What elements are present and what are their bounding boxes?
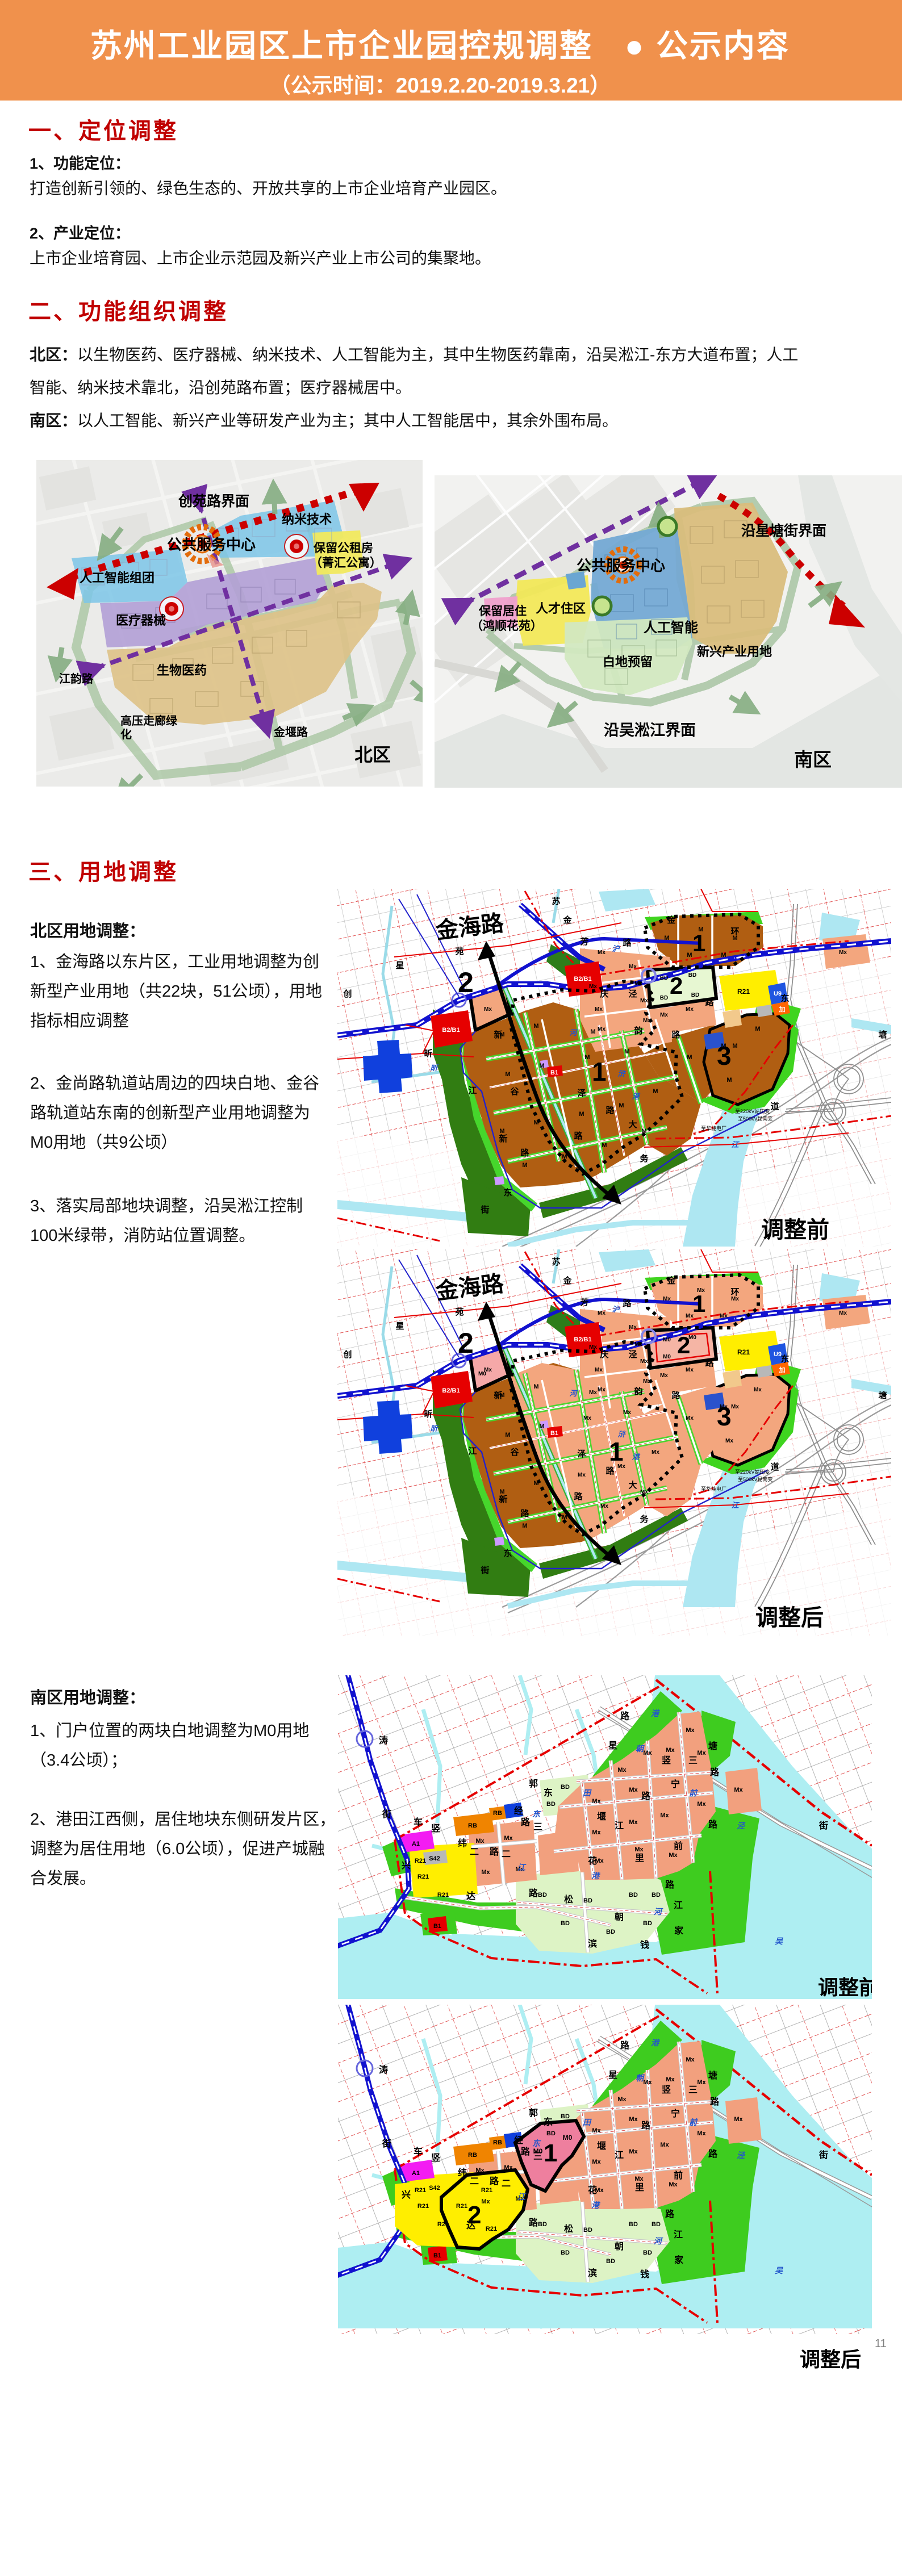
svg-text:田: 田 <box>583 1788 592 1797</box>
svg-text:M: M <box>653 1088 658 1095</box>
svg-text:环: 环 <box>730 1287 739 1297</box>
svg-text:花: 花 <box>588 1855 597 1866</box>
svg-text:芳: 芳 <box>580 1297 588 1307</box>
svg-text:Mx: Mx <box>592 1829 601 1836</box>
svg-text:新: 新 <box>499 1134 507 1144</box>
svg-text:达: 达 <box>466 2220 475 2231</box>
svg-text:新: 新 <box>499 1494 507 1504</box>
svg-text:Mx: Mx <box>720 1404 728 1410</box>
svg-text:R21: R21 <box>481 2187 492 2194</box>
svg-text:R21: R21 <box>486 2226 497 2232</box>
svg-text:路: 路 <box>665 2209 675 2219</box>
svg-text:二: 二 <box>502 2179 511 2189</box>
svg-text:昕: 昕 <box>424 1048 432 1059</box>
svg-text:家: 家 <box>674 2255 684 2265</box>
svg-text:Mx: Mx <box>629 1324 637 1331</box>
svg-text:Mx: Mx <box>697 1750 706 1757</box>
svg-text:三: 三 <box>533 2152 542 2161</box>
svg-text:Mx: Mx <box>839 1310 847 1316</box>
svg-text:兴: 兴 <box>402 1860 411 1871</box>
svg-text:环: 环 <box>730 927 739 936</box>
svg-text:江: 江 <box>674 2230 683 2240</box>
svg-text:Mx: Mx <box>589 984 597 990</box>
svg-text:Mx: Mx <box>589 1390 597 1396</box>
svg-text:Mx: Mx <box>643 1378 651 1385</box>
svg-text:Mx: Mx <box>660 1373 668 1379</box>
svg-text:B2/B1: B2/B1 <box>574 976 591 982</box>
svg-text:花: 花 <box>588 2185 597 2196</box>
svg-text:M: M <box>539 1423 544 1430</box>
svg-text:竖: 竖 <box>662 1755 671 1766</box>
svg-text:Mx: Mx <box>643 1018 651 1024</box>
svg-text:港: 港 <box>632 1092 640 1101</box>
svg-text:A1: A1 <box>412 2170 420 2177</box>
svg-text:东: 东 <box>544 1787 553 1798</box>
svg-text:路: 路 <box>490 1846 499 1857</box>
svg-text:南区: 南区 <box>794 749 832 770</box>
svg-text:浒: 浒 <box>617 1430 626 1438</box>
svg-text:Mx: Mx <box>634 2176 644 2182</box>
svg-text:纬: 纬 <box>458 2167 467 2178</box>
svg-text:堰: 堰 <box>597 2141 606 2151</box>
svg-text:沪: 沪 <box>612 944 620 953</box>
svg-text:人工智能组团: 人工智能组团 <box>80 571 154 585</box>
svg-text:Mx: Mx <box>686 1727 695 1734</box>
svg-text:Mx: Mx <box>686 1415 694 1421</box>
svg-text:1: 1 <box>592 1057 607 1086</box>
svg-text:BD: BD <box>561 2113 570 2120</box>
svg-text:Mx: Mx <box>634 1846 644 1853</box>
svg-text:苑: 苑 <box>455 1307 463 1317</box>
svg-text:路: 路 <box>705 997 714 1007</box>
svg-text:BD: BD <box>561 1920 570 1927</box>
svg-text:Mx: Mx <box>617 2096 627 2103</box>
svg-text:Mx: Mx <box>475 1838 485 1845</box>
svg-text:泾: 泾 <box>628 989 637 999</box>
svg-text:Mx: Mx <box>734 1787 743 1793</box>
svg-text:金: 金 <box>666 1276 676 1286</box>
svg-text:BD: BD <box>546 2130 556 2137</box>
svg-text:M: M <box>726 1077 732 1084</box>
svg-text:Mx: Mx <box>640 1358 648 1365</box>
svg-text:Mx: Mx <box>598 1387 605 1393</box>
svg-text:M0: M0 <box>478 1371 486 1377</box>
svg-text:保留居住: 保留居住 <box>478 604 527 618</box>
svg-text:M: M <box>687 1054 692 1061</box>
svg-text:Mx: Mx <box>663 1296 671 1302</box>
svg-text:Mx: Mx <box>839 950 847 956</box>
svg-text:吴: 吴 <box>775 2266 783 2275</box>
svg-text:Mx: Mx <box>595 1367 603 1373</box>
svg-text:BD: BD <box>691 992 699 998</box>
svg-text:堰: 堰 <box>597 1812 606 1822</box>
svg-text:韵: 韵 <box>634 1026 642 1036</box>
svg-text:R21: R21 <box>415 2187 426 2194</box>
svg-text:M: M <box>721 1043 726 1049</box>
svg-text:路: 路 <box>620 2040 630 2051</box>
svg-text:Mx: Mx <box>669 1852 678 1859</box>
svg-text:纳米技术: 纳米技术 <box>282 512 332 526</box>
svg-text:M: M <box>641 1128 646 1135</box>
svg-text:东: 东 <box>503 1548 512 1558</box>
svg-text:Mx: Mx <box>595 1006 603 1013</box>
svg-text:M: M <box>721 952 726 959</box>
svg-text:经: 经 <box>514 2135 523 2146</box>
svg-text:松: 松 <box>564 2223 573 2234</box>
svg-text:钱: 钱 <box>640 2269 649 2280</box>
svg-text:江: 江 <box>615 2150 624 2160</box>
svg-text:路: 路 <box>665 1879 675 1890</box>
svg-text:Mx: Mx <box>481 2198 490 2205</box>
svg-text:金: 金 <box>562 915 572 925</box>
svg-text:至华能电厂: 至华能电厂 <box>701 1125 726 1131</box>
svg-text:创: 创 <box>343 989 352 999</box>
svg-text:RB: RB <box>493 2139 502 2146</box>
svg-text:加: 加 <box>779 1005 786 1013</box>
svg-text:里: 里 <box>635 1853 644 1863</box>
svg-text:宁: 宁 <box>671 2108 680 2119</box>
svg-text:Mx: Mx <box>697 1801 706 1808</box>
svg-text:Mx: Mx <box>598 1026 605 1032</box>
svg-text:泽: 泽 <box>577 1449 586 1459</box>
svg-text:BD: BD <box>643 2249 652 2256</box>
svg-text:至华能电厂: 至华能电厂 <box>701 1486 726 1492</box>
svg-text:Mx: Mx <box>697 1287 705 1294</box>
svg-text:BD: BD <box>538 1892 547 1898</box>
svg-text:路: 路 <box>620 1711 630 1721</box>
svg-text:江韵路: 江韵路 <box>59 672 94 685</box>
svg-text:创苑路界面: 创苑路界面 <box>178 494 249 509</box>
svg-text:江: 江 <box>731 1501 740 1509</box>
svg-text:路: 路 <box>708 2148 718 2159</box>
svg-text:泽: 泽 <box>577 1089 586 1098</box>
svg-text:Mx: Mx <box>598 1310 605 1316</box>
svg-text:东: 东 <box>503 1187 512 1198</box>
svg-text:路: 路 <box>671 1030 680 1040</box>
svg-text:涛: 涛 <box>379 2064 388 2075</box>
svg-text:M: M <box>590 1028 595 1035</box>
svg-text:加: 加 <box>779 1366 786 1374</box>
svg-text:B2/B1: B2/B1 <box>574 1336 591 1343</box>
svg-text:新: 新 <box>494 1390 502 1400</box>
svg-text:郭: 郭 <box>529 1778 538 1789</box>
svg-text:S42: S42 <box>429 2185 440 2192</box>
svg-text:（菁汇公寓）: （菁汇公寓） <box>310 556 382 570</box>
svg-text:前: 前 <box>674 1841 683 1851</box>
svg-text:M0: M0 <box>663 1354 671 1360</box>
svg-text:星: 星 <box>608 2070 617 2080</box>
svg-text:沿星塘街界面: 沿星塘街界面 <box>741 522 826 539</box>
svg-text:苏: 苏 <box>552 896 560 906</box>
svg-text:BD: BD <box>629 2221 638 2228</box>
svg-text:三: 三 <box>688 1756 698 1766</box>
svg-text:化: 化 <box>120 727 132 741</box>
svg-text:Mx: Mx <box>578 1472 586 1478</box>
svg-text:B1: B1 <box>550 1430 558 1437</box>
svg-text:路: 路 <box>605 1466 615 1476</box>
svg-text:调整前: 调整前 <box>818 1976 872 1999</box>
svg-text:公共服务中心: 公共服务中心 <box>577 557 665 574</box>
svg-text:东: 东 <box>532 1809 541 1818</box>
svg-text:M0: M0 <box>563 2134 573 2142</box>
svg-text:1: 1 <box>609 1437 624 1466</box>
svg-text:朝: 朝 <box>636 2073 645 2082</box>
svg-text:江: 江 <box>674 1900 683 1910</box>
svg-text:Mx: Mx <box>598 950 605 956</box>
svg-text:调整前: 调整前 <box>761 1218 829 1243</box>
svg-text:庆: 庆 <box>600 1349 608 1360</box>
svg-text:Mx: Mx <box>504 2164 513 2171</box>
svg-text:至220kV姑田变: 至220kV姑田变 <box>735 1469 770 1475</box>
svg-text:金: 金 <box>562 1276 572 1286</box>
svg-text:街: 街 <box>480 1205 489 1215</box>
svg-text:Mx: Mx <box>754 1387 762 1393</box>
svg-text:医疗器械: 医疗器械 <box>116 613 166 628</box>
svg-text:新兴产业用地: 新兴产业用地 <box>697 645 772 659</box>
svg-text:B1: B1 <box>550 1069 558 1076</box>
svg-text:M: M <box>732 1043 737 1049</box>
svg-text:人才住区: 人才住区 <box>536 601 586 616</box>
svg-text:大: 大 <box>628 1119 637 1130</box>
svg-text:路: 路 <box>710 2096 720 2107</box>
svg-text:浒: 浒 <box>617 1069 626 1078</box>
svg-text:路: 路 <box>574 1491 583 1502</box>
svg-text:二: 二 <box>470 2177 479 2186</box>
svg-text:Mx: Mx <box>629 1787 638 1793</box>
svg-text:朝: 朝 <box>636 1744 645 1753</box>
svg-text:Mx: Mx <box>640 998 648 1004</box>
svg-text:B1: B1 <box>433 1923 441 1930</box>
svg-text:经: 经 <box>514 1805 523 1816</box>
svg-text:江: 江 <box>731 1140 740 1149</box>
svg-text:M: M <box>619 1102 624 1109</box>
svg-text:M: M <box>698 926 703 933</box>
svg-text:BD: BD <box>660 975 668 981</box>
svg-text:Mx: Mx <box>600 1503 608 1509</box>
svg-text:Mx: Mx <box>643 1750 652 1757</box>
svg-text:道: 道 <box>770 1462 779 1472</box>
svg-text:生物医药: 生物医药 <box>157 663 207 678</box>
svg-text:前: 前 <box>674 2170 683 2181</box>
svg-text:昕: 昕 <box>424 1409 432 1419</box>
svg-text:街: 街 <box>819 1820 828 1831</box>
svg-text:Mx: Mx <box>475 2167 485 2174</box>
svg-text:路: 路 <box>520 1148 529 1158</box>
svg-text:Mx: Mx <box>734 2116 743 2123</box>
svg-text:人工智能: 人工智能 <box>644 620 698 635</box>
svg-text:三: 三 <box>688 2085 698 2095</box>
svg-text:Mx: Mx <box>643 2079 652 2086</box>
svg-text:BD: BD <box>606 1929 615 1935</box>
svg-text:星: 星 <box>395 961 404 971</box>
svg-text:BD: BD <box>561 1784 570 1791</box>
svg-text:BD: BD <box>629 1892 638 1898</box>
svg-text:至500kV昆南变: 至500kV昆南变 <box>738 1115 773 1122</box>
svg-text:B2/B1: B2/B1 <box>442 1027 460 1034</box>
svg-text:1: 1 <box>544 2139 557 2167</box>
svg-text:东: 东 <box>532 2139 541 2148</box>
svg-text:北区: 北区 <box>354 745 391 765</box>
svg-text:M: M <box>562 1514 567 1521</box>
svg-text:Mx: Mx <box>652 1449 659 1456</box>
svg-text:谷: 谷 <box>510 1087 519 1097</box>
svg-text:M: M <box>539 1063 544 1069</box>
svg-text:R21: R21 <box>415 1858 426 1864</box>
svg-text:BD: BD <box>688 972 696 978</box>
svg-text:M: M <box>664 935 669 942</box>
svg-text:R21: R21 <box>737 1348 750 1356</box>
svg-text:M: M <box>522 1162 527 1169</box>
svg-text:高压走廊绿: 高压走廊绿 <box>120 714 178 727</box>
svg-text:1: 1 <box>692 930 705 956</box>
svg-text:庆: 庆 <box>600 989 608 999</box>
svg-text:M: M <box>624 1048 629 1055</box>
svg-text:Mx: Mx <box>589 1344 597 1350</box>
svg-text:2: 2 <box>458 967 474 998</box>
svg-text:M0: M0 <box>663 1337 671 1343</box>
svg-text:Mx: Mx <box>720 1313 728 1319</box>
svg-text:R21: R21 <box>417 2203 429 2210</box>
svg-text:路: 路 <box>623 1298 632 1308</box>
svg-text:1: 1 <box>692 1290 705 1317</box>
svg-text:2: 2 <box>670 972 683 999</box>
svg-text:白地预留: 白地预留 <box>603 655 653 669</box>
svg-text:泾: 泾 <box>737 1821 746 1830</box>
svg-text:竖: 竖 <box>431 1824 440 1834</box>
svg-text:RB: RB <box>493 1810 502 1817</box>
svg-text:朝: 朝 <box>615 1912 624 1922</box>
svg-text:BD: BD <box>652 2221 661 2228</box>
svg-text:芳: 芳 <box>580 936 588 947</box>
svg-text:M: M <box>522 1523 527 1529</box>
svg-text:竖: 竖 <box>431 2153 440 2163</box>
svg-text:塘: 塘 <box>878 1030 887 1040</box>
svg-text:朝: 朝 <box>615 2241 624 2252</box>
svg-text:M: M <box>533 1023 538 1030</box>
svg-text:江: 江 <box>517 2192 527 2201</box>
svg-text:保留公租房: 保留公租房 <box>313 541 373 555</box>
svg-text:二: 二 <box>502 1850 511 1859</box>
svg-text:路: 路 <box>641 2120 651 2131</box>
svg-text:RB: RB <box>468 2152 477 2159</box>
svg-text:钱: 钱 <box>640 1939 649 1950</box>
svg-text:Mx: Mx <box>669 2181 678 2188</box>
svg-text:街: 街 <box>819 2150 828 2160</box>
svg-text:路: 路 <box>623 938 632 948</box>
svg-text:滨: 滨 <box>588 1938 597 1949</box>
svg-text:松: 松 <box>564 1894 573 1905</box>
svg-text:Mx: Mx <box>697 2079 706 2086</box>
svg-text:R21: R21 <box>737 988 750 996</box>
svg-text:东: 东 <box>780 1354 789 1364</box>
svg-text:Mx: Mx <box>623 1410 631 1416</box>
svg-text:Mx: Mx <box>666 2076 675 2083</box>
svg-text:Mx: Mx <box>634 981 642 987</box>
svg-text:R21: R21 <box>437 1892 449 1898</box>
svg-text:江: 江 <box>468 1085 477 1095</box>
svg-text:BD: BD <box>561 2249 570 2256</box>
svg-text:塘: 塘 <box>708 1741 717 1751</box>
svg-text:江: 江 <box>615 1821 624 1831</box>
svg-text:M: M <box>584 1054 590 1061</box>
svg-text:至500kV昆南变: 至500kV昆南变 <box>738 1476 773 1482</box>
svg-text:Mx: Mx <box>583 1415 591 1421</box>
svg-text:至220kV姑田变: 至220kV姑田变 <box>735 1108 770 1114</box>
svg-text:滨: 滨 <box>588 2268 597 2278</box>
svg-text:Mx: Mx <box>592 2127 601 2134</box>
svg-text:金堰路: 金堰路 <box>273 725 308 739</box>
svg-text:Mx: Mx <box>660 1812 669 1819</box>
svg-text:S42: S42 <box>429 1855 440 1862</box>
svg-text:塘: 塘 <box>708 2070 717 2081</box>
svg-text:街: 街 <box>382 2138 391 2149</box>
svg-text:Mx: Mx <box>686 1367 694 1373</box>
svg-text:大: 大 <box>628 1480 637 1490</box>
svg-text:Mx: Mx <box>617 1767 627 1774</box>
svg-text:路: 路 <box>521 2146 531 2157</box>
svg-text:Mx: Mx <box>660 1012 668 1018</box>
svg-text:金: 金 <box>666 915 676 925</box>
svg-text:务: 务 <box>640 1514 649 1524</box>
svg-text:B1: B1 <box>433 2252 441 2259</box>
svg-text:Mx: Mx <box>731 1404 739 1410</box>
svg-text:东: 东 <box>780 993 789 1003</box>
svg-text:调整后: 调整后 <box>755 1605 824 1630</box>
svg-text:田: 田 <box>583 2118 592 2127</box>
svg-text:M: M <box>579 1111 584 1118</box>
svg-text:Mx: Mx <box>697 2130 706 2137</box>
svg-text:A1: A1 <box>412 1841 420 1847</box>
svg-text:M0: M0 <box>688 1335 696 1341</box>
svg-text:街: 街 <box>480 1565 489 1575</box>
svg-text:Mx: Mx <box>504 1835 513 1842</box>
svg-text:沪: 沪 <box>612 1305 620 1314</box>
svg-text:纬: 纬 <box>458 1838 467 1849</box>
svg-text:兴: 兴 <box>402 2190 411 2200</box>
svg-text:Mx: Mx <box>629 2148 638 2155</box>
svg-text:泾: 泾 <box>628 1349 637 1360</box>
svg-text:星: 星 <box>395 1322 404 1331</box>
svg-text:M: M <box>562 1153 567 1160</box>
svg-text:东: 东 <box>544 2117 553 2127</box>
svg-text:M: M <box>505 1432 510 1438</box>
svg-text:BD: BD <box>660 995 668 1001</box>
svg-text:Mx: Mx <box>660 2142 669 2148</box>
svg-text:路: 路 <box>705 1358 714 1368</box>
svg-text:竖: 竖 <box>662 2085 671 2095</box>
svg-text:路: 路 <box>521 1817 531 1828</box>
svg-text:R21: R21 <box>456 2203 467 2210</box>
svg-text:公共服务中心: 公共服务中心 <box>167 536 256 553</box>
svg-text:车: 车 <box>414 1817 423 1828</box>
svg-text:路: 路 <box>671 1390 680 1400</box>
svg-text:路: 路 <box>490 2176 499 2186</box>
svg-text:路: 路 <box>708 1819 718 1830</box>
svg-text:路: 路 <box>529 2217 538 2228</box>
svg-text:M: M <box>533 1383 538 1390</box>
svg-text:创: 创 <box>343 1349 352 1360</box>
svg-text:Mx: Mx <box>640 1489 648 1495</box>
svg-text:达: 达 <box>466 1891 475 1901</box>
svg-text:Mx: Mx <box>634 1341 642 1348</box>
svg-text:BD: BD <box>538 2221 547 2228</box>
svg-text:Mx: Mx <box>686 2056 695 2063</box>
svg-text:路: 路 <box>710 1767 720 1778</box>
svg-text:Mx: Mx <box>686 1006 694 1013</box>
svg-text:（鸿顺花苑）: （鸿顺花苑） <box>471 619 542 633</box>
svg-text:M: M <box>533 1119 538 1126</box>
svg-text:BD: BD <box>652 1892 661 1898</box>
